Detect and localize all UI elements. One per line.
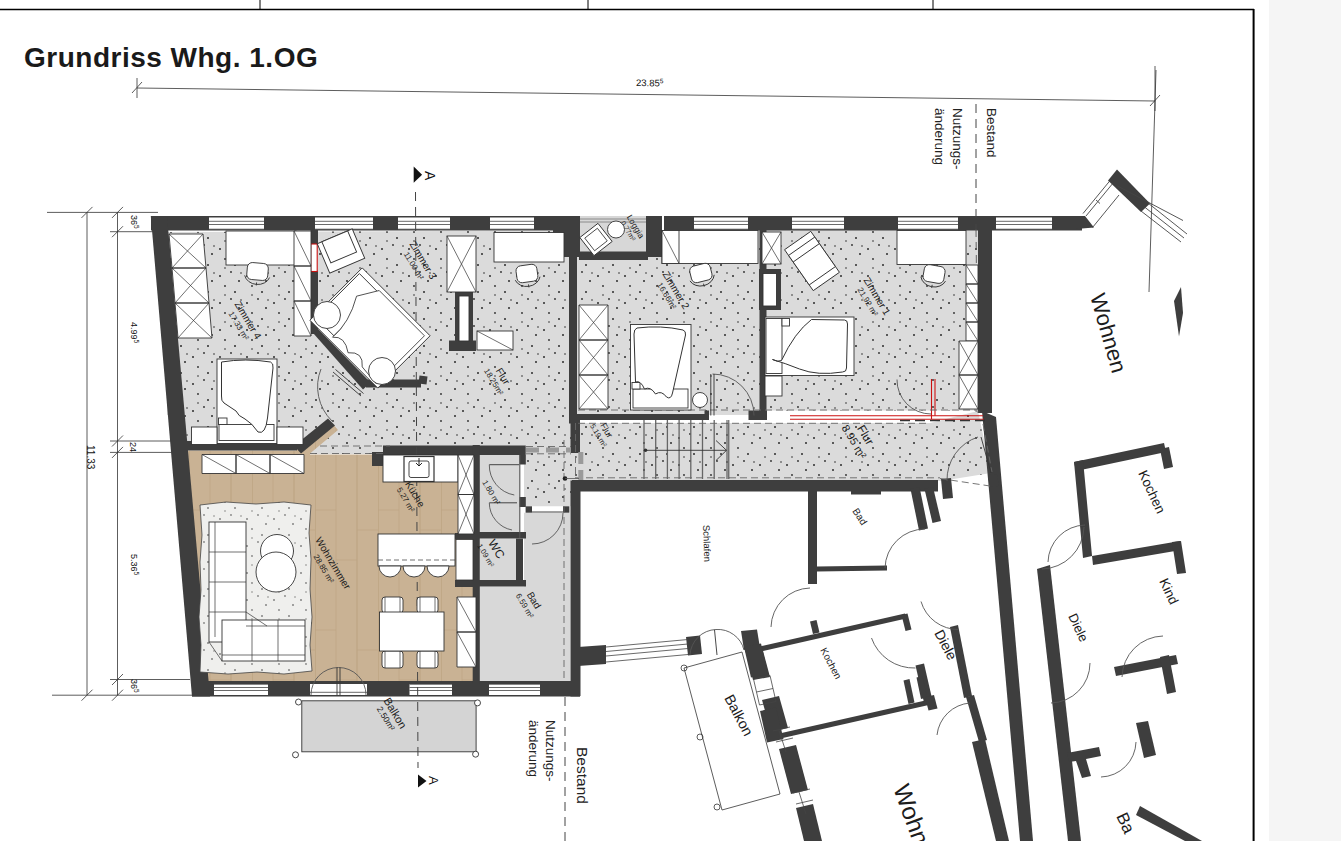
svg-text:11.33: 11.33 xyxy=(85,445,96,470)
svg-text:Bestand: Bestand xyxy=(574,747,591,804)
svg-text:Bestand: Bestand xyxy=(984,108,999,158)
svg-text:A: A xyxy=(426,776,441,785)
svg-text:änderung: änderung xyxy=(932,108,947,165)
svg-text:änderung: änderung xyxy=(526,720,541,777)
svg-text:Schlafen: Schlafen xyxy=(701,525,713,562)
svg-text:Nutzungs-: Nutzungs- xyxy=(543,720,558,782)
svg-text:Grundriss Whg. 1.OG: Grundriss Whg. 1.OG xyxy=(24,42,318,73)
svg-text:24: 24 xyxy=(128,442,138,452)
svg-text:23.855: 23.855 xyxy=(636,77,664,88)
svg-text:Nutzungs-: Nutzungs- xyxy=(950,108,965,170)
svg-text:A: A xyxy=(422,171,438,181)
